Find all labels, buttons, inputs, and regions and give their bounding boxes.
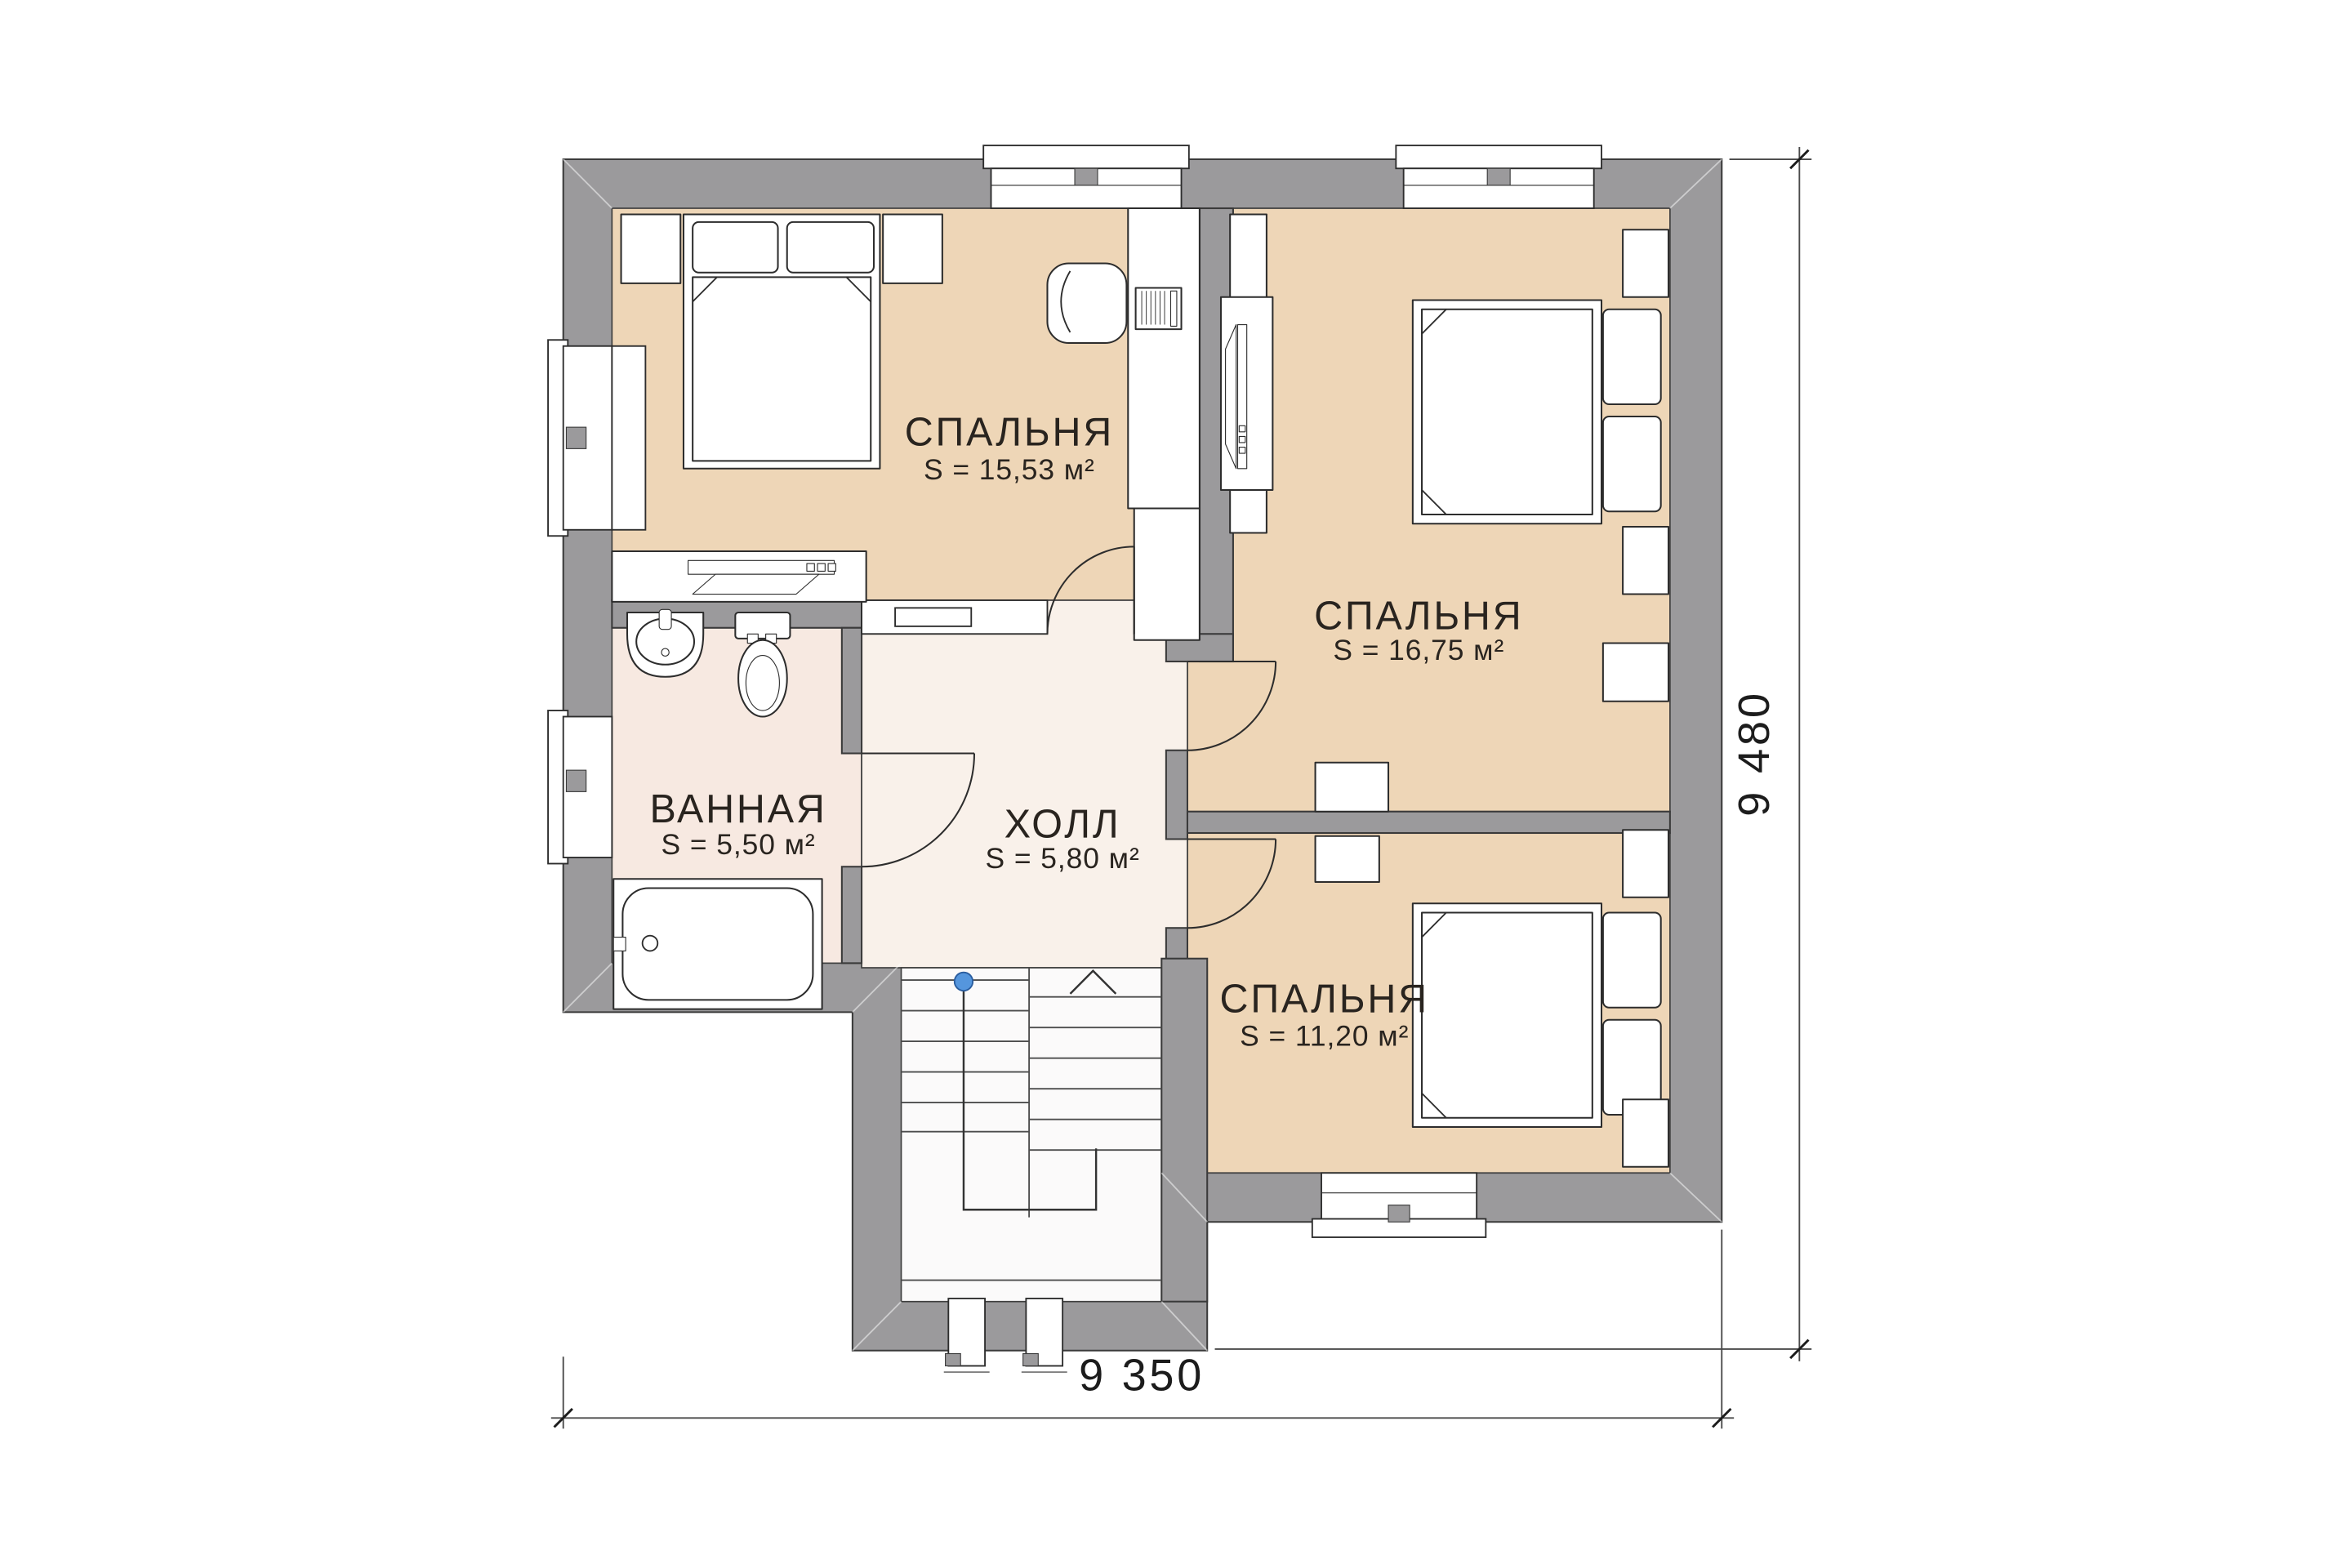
- nightstand-icon: [1623, 527, 1668, 595]
- dresser-tv-icon: [612, 551, 866, 602]
- floor-plan: СПАЛЬНЯ S = 15,53 м² СПАЛЬНЯ S = 16,75 м…: [0, 0, 2352, 1568]
- closet-icon: [1316, 763, 1388, 812]
- stairwell-floor: [902, 968, 1162, 1302]
- hall-label: ХОЛЛ: [1004, 802, 1121, 846]
- bedroom-3-label: СПАЛЬНЯ: [1220, 977, 1429, 1021]
- dimension-width-label: 9 350: [1079, 1351, 1205, 1400]
- bathtub-icon: [613, 879, 822, 1009]
- window-icon-porch-right: [1022, 1298, 1067, 1372]
- window-icon-top-bedroom1: [983, 145, 1189, 208]
- double-bed-icon: [684, 215, 880, 469]
- closet-icon: [1316, 836, 1379, 882]
- office-chair-icon: [1047, 264, 1126, 344]
- window-icon-top-bedroom2: [1396, 145, 1601, 208]
- tv-console-icon: [1221, 297, 1272, 490]
- toilet-icon: [735, 612, 790, 717]
- wall-bedroom2-bedroom3: [1187, 812, 1670, 833]
- bathroom-label: ВАННАЯ: [650, 787, 827, 831]
- wall-hall-right-mid: [1166, 751, 1187, 840]
- wall-bath-hall-lower: [842, 866, 862, 963]
- bedroom-2-area: S = 16,75 м²: [1333, 634, 1504, 666]
- wall-bath-hall-upper: [842, 628, 862, 754]
- bedroom-1-label: СПАЛЬНЯ: [905, 410, 1114, 454]
- nightstand-icon: [1623, 1099, 1668, 1167]
- cabinet-icon: [1603, 644, 1668, 702]
- wall-stairbay-right: [1161, 959, 1207, 1302]
- bathroom-area: S = 5,50 м²: [661, 828, 816, 861]
- dimension-height-label: 9 480: [1730, 690, 1779, 817]
- nightstand-icon: [883, 215, 942, 283]
- window-icon-left-bedroom1: [548, 340, 645, 536]
- window-icon-porch-left: [944, 1298, 990, 1372]
- handrail-post-dot: [955, 973, 973, 991]
- bedroom-1-area: S = 15,53 м²: [924, 453, 1095, 486]
- nightstand-icon: [1623, 830, 1668, 898]
- hall-area: S = 5,80 м²: [986, 842, 1140, 875]
- window-icon-left-bathroom: [548, 710, 612, 864]
- bedroom-2-label: СПАЛЬНЯ: [1314, 594, 1523, 638]
- nightstand-icon: [1623, 229, 1668, 297]
- hall-floor: [862, 600, 1187, 968]
- desk-icon: [1128, 208, 1200, 640]
- window-icon-bottom-bedroom3: [1312, 1173, 1486, 1237]
- sink-icon: [627, 609, 703, 677]
- nightstand-icon: [621, 215, 681, 283]
- bedroom-3-area: S = 11,20 м²: [1240, 1020, 1409, 1053]
